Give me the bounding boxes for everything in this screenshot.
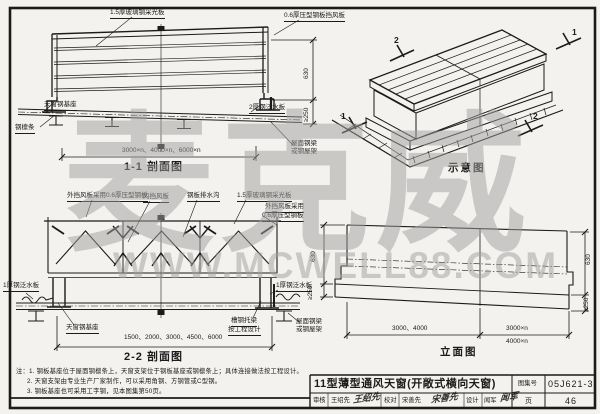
review-name: 王绍先 <box>331 398 350 404</box>
label-elevation: 立面图 <box>440 347 478 358</box>
callout-steel-base: 天窗钢基座 <box>44 102 77 111</box>
note-line-3: 3. 钢板基座也可采用工字钢，见本图集第50页。 <box>27 389 165 395</box>
callout-roof-beam-22-2: 或钢屋架 <box>296 327 322 334</box>
callout-gutter: 钢板排水沟 <box>187 193 220 202</box>
callout-inner-baffle: 内挡风板 <box>143 194 169 203</box>
atlas-no-value: 05J621-3 <box>548 380 594 389</box>
callout-joist-line2: 按工程设计 <box>228 327 261 336</box>
note-line-1: 注：1. 钢板基座位于屋面钢檩条上，天窗支架位于钢板基座或钢檩条上；具体连接做法… <box>16 369 303 375</box>
label-isometric: 示意图 <box>448 163 486 174</box>
v-plates <box>113 226 210 266</box>
dim-630-elev-left: 630 <box>311 251 318 262</box>
review-label: 审核 <box>313 398 326 404</box>
atlas-no-label: 图集号 <box>518 381 537 387</box>
callout-outer-baffle: 外挡风板采用0.6厚压型钢板 <box>67 193 148 202</box>
callout-outer-baffle2-line2: 0.6厚压型钢板 <box>262 213 304 222</box>
design-label: 设计 <box>466 398 479 404</box>
cut-mark-1-bottom: 1 <box>341 112 346 121</box>
baffle-tents <box>56 231 269 264</box>
callout-roof-beam-22-1: 屋面钢梁 <box>296 319 322 326</box>
dim-630-1-1: 630 <box>304 68 311 79</box>
label-section-2-2: 2-2 剖面图 <box>124 352 183 363</box>
check-name: 宋善先 <box>402 398 421 404</box>
dim-elev-right-span-2: 4000×n <box>506 339 528 346</box>
isometric-view-drawing <box>332 30 581 167</box>
dim-elev-right-span-1: 3000×n <box>506 326 528 333</box>
dim-250-elev-left: ≥250 <box>308 286 315 300</box>
cut-mark-1-top: 1 <box>572 28 577 37</box>
section-1-1-drawing <box>18 17 317 161</box>
callout-wind-baffle: 0.6厚压型钢板挡风板 <box>284 13 345 22</box>
elevation-drawing <box>320 222 589 339</box>
dim-250-elev-right: ≥250 <box>584 298 591 312</box>
drawing-title: 11型薄型通风天窗(开敞式横向天窗) <box>314 379 496 390</box>
callout-flashing-2mm: 2厚钢泛水板 <box>249 105 285 114</box>
callout-roof-beam-2: 或钢屋架 <box>291 149 317 156</box>
atlas-page: 1.5厚玻璃钢采光板 0.6厚压型钢板挡风板 天窗钢基座 钢檩条 2厚钢泛水板 … <box>0 0 600 414</box>
check-label: 校对 <box>384 398 397 404</box>
note-line-2: 2. 天窗支架由专业生产厂家制作，可以采用角钢、方钢管或C型钢。 <box>27 379 221 385</box>
leader-lines-1-1 <box>40 17 299 145</box>
design-name: 闻军 <box>484 398 497 404</box>
dim-250-1-1: ≥250 <box>304 108 311 122</box>
dim-span-1-1: 3000×n、4000×n、6000×n <box>122 148 201 155</box>
callout-roof-beam-1: 屋面钢梁 <box>291 141 317 148</box>
callout-purlin: 钢檩条 <box>15 125 35 134</box>
i-beam-symbols <box>49 116 191 129</box>
callout-frp-panel-22: 1.5厚玻璃钢采光板 <box>237 193 292 202</box>
dim-elev-left-span: 3000、4000 <box>392 326 427 333</box>
label-section-1-1: 1-1 剖面图 <box>124 162 183 173</box>
cut-mark-2-bottom: 2 <box>533 112 538 121</box>
page-number: 46 <box>565 397 577 406</box>
page-label: 页 <box>525 398 532 405</box>
callout-frp-panel: 1.5厚玻璃钢采光板 <box>110 10 165 19</box>
callout-steel-base-22: 天窗钢基座 <box>66 325 99 334</box>
dim-span-2-2: 1500、2000、3000、4500、6000 <box>124 335 222 342</box>
dim-630-elev-right: 630 <box>586 254 593 265</box>
callout-flashing-left: 1厚钢泛水板 <box>3 283 39 292</box>
cut-mark-2-top: 2 <box>394 36 399 45</box>
